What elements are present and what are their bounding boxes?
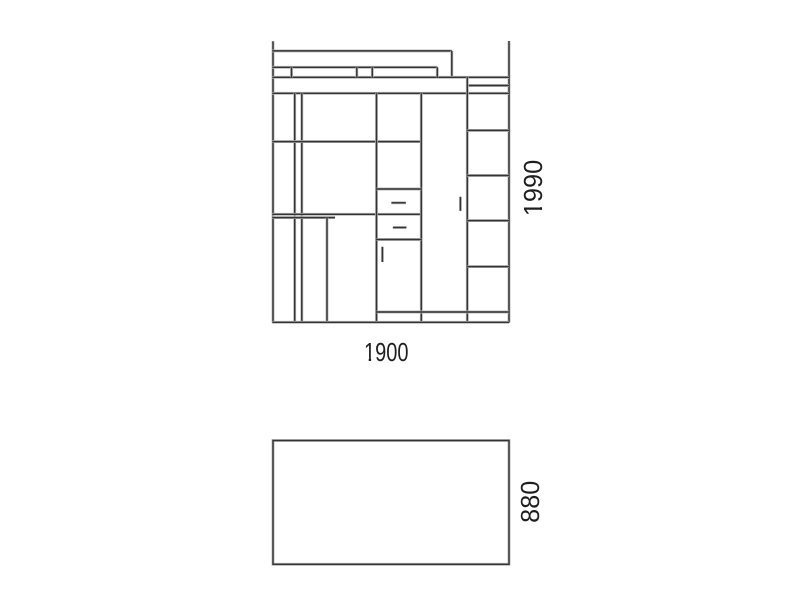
svg-text:1990: 1990 xyxy=(520,160,548,216)
svg-text:1900: 1900 xyxy=(364,338,409,367)
svg-text:880: 880 xyxy=(516,481,544,523)
